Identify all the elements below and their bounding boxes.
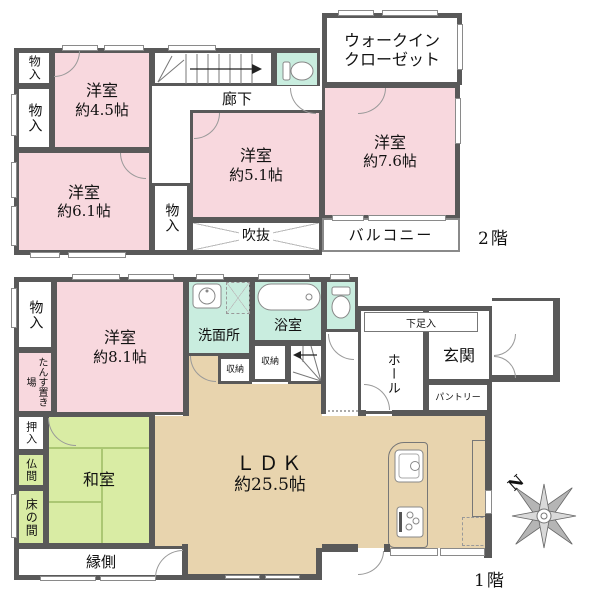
window xyxy=(485,490,492,514)
kitchen-sink-icon xyxy=(394,449,424,483)
room-size: 約8.1帖 xyxy=(93,348,147,366)
room-label: 押入 xyxy=(24,421,37,445)
room-label: バルコニー xyxy=(349,226,434,244)
room-label: 玄関 xyxy=(443,346,475,365)
window xyxy=(455,98,461,144)
room-closet-2f-b: 物入 xyxy=(14,86,52,150)
staircase-1f xyxy=(288,343,324,384)
room-tansu-space: たんす置き場 xyxy=(14,350,54,414)
room-label: 物入 xyxy=(163,203,180,233)
room-size: 約5.1帖 xyxy=(229,166,283,184)
room-label: 洋室 xyxy=(374,133,406,152)
window xyxy=(368,215,446,221)
balcony: バルコニー xyxy=(322,218,460,252)
room-size: 約25.5帖 xyxy=(234,475,306,495)
room-label: 物入 xyxy=(26,103,43,133)
room-label: たんす置き場 xyxy=(23,356,47,408)
room-label: 収納 xyxy=(261,357,279,368)
room-toilet-2f xyxy=(274,48,320,88)
window xyxy=(11,94,17,136)
north-label: N xyxy=(504,471,528,495)
window xyxy=(30,252,60,258)
wall-segment xyxy=(484,548,492,558)
compass-rose: N xyxy=(504,458,584,566)
room-closet-2f-a: 物入 xyxy=(14,48,52,86)
room-label: 下足入 xyxy=(406,315,436,330)
room-walk-in-closet: ウォークイン クローゼット xyxy=(322,13,462,85)
floor-boundary xyxy=(324,410,358,412)
room-label: ＬＤＫ xyxy=(236,451,305,475)
room-butsuma: 仏間 xyxy=(14,452,46,488)
washer-space-icon xyxy=(226,282,250,314)
wall-segment xyxy=(183,354,189,416)
window xyxy=(68,252,126,258)
tatami-line xyxy=(101,447,103,543)
room-shoe-cabinet: 下足入 xyxy=(364,312,478,332)
room-label: 物入 xyxy=(27,300,44,330)
window xyxy=(330,274,350,280)
room-closet-1f: 物入 xyxy=(14,277,54,350)
room-western-8-1: 洋室 約8.1帖 xyxy=(54,277,186,415)
ldk-label-wrap: ＬＤＫ 約25.5帖 xyxy=(200,446,340,500)
window xyxy=(225,575,260,579)
floor-label-1f: 1階 xyxy=(474,566,506,591)
door-arc xyxy=(358,551,384,575)
window xyxy=(104,45,144,51)
room-label: 縁側 xyxy=(86,553,116,571)
window xyxy=(265,575,300,579)
room-tokonoma: 床の間 xyxy=(14,488,46,546)
staircase-2f xyxy=(152,48,274,86)
toilet-icon xyxy=(329,285,353,323)
room-label: パントリー xyxy=(435,393,480,404)
wall-segment xyxy=(358,410,366,416)
stove-icon xyxy=(396,506,424,538)
room-label: 洋室 xyxy=(68,183,100,202)
room-size: 約4.5帖 xyxy=(75,101,129,119)
window xyxy=(168,45,216,51)
room-label: 浴室 xyxy=(274,318,302,335)
window xyxy=(390,548,438,556)
room-label: 廊下 xyxy=(222,90,252,108)
window xyxy=(332,215,364,221)
room-label: 床の間 xyxy=(24,498,38,537)
room-label: 仏間 xyxy=(24,458,37,482)
toilet-icon xyxy=(281,57,317,85)
room-closet-2f-c: 物入 xyxy=(152,183,190,255)
window xyxy=(128,274,174,280)
ldk-area xyxy=(218,384,322,416)
room-size: 約7.6帖 xyxy=(363,152,417,170)
window xyxy=(72,274,120,280)
wall-segment xyxy=(322,544,358,552)
stairs-icon xyxy=(156,54,270,84)
window xyxy=(440,548,485,556)
room-label: 洋室 xyxy=(240,146,272,165)
floor-plan: ウォークイン クローゼット 物入 物入 洋室 約4.5帖 xyxy=(0,0,600,600)
room-closet-shuno-a: 収納 xyxy=(218,356,252,384)
wall-segment xyxy=(392,410,492,416)
room-label: 吹抜 xyxy=(239,228,273,245)
window xyxy=(11,288,17,328)
room-label: 洗面所 xyxy=(198,328,240,345)
wall-segment xyxy=(149,414,155,548)
room-label: ホール xyxy=(384,353,400,395)
room-label: 洋室 xyxy=(104,328,136,347)
room-label: クローゼット xyxy=(344,50,440,69)
room-size: 約6.1帖 xyxy=(57,202,111,220)
room-oshiire-closet: 押入 xyxy=(14,414,46,452)
tatami-line xyxy=(49,501,101,503)
window xyxy=(196,274,224,280)
window xyxy=(11,206,17,246)
room-label: ウォークイン xyxy=(344,31,440,50)
room-toilet-1f xyxy=(324,277,358,332)
window xyxy=(338,10,374,16)
window xyxy=(382,10,438,16)
window xyxy=(457,24,463,70)
atrium-void: 吹抜 xyxy=(190,220,322,255)
wall-segment xyxy=(321,332,326,414)
floor-label-2f: 2階 xyxy=(478,224,510,249)
window xyxy=(100,576,156,581)
window xyxy=(11,494,17,538)
room-label: 収納 xyxy=(226,365,244,376)
washbasin-icon xyxy=(192,283,222,309)
room-western-7-6: 洋室 約7.6帖 xyxy=(322,85,460,218)
wall-segment xyxy=(485,410,492,490)
stairs-icon xyxy=(291,346,321,381)
room-label: 和室 xyxy=(83,470,115,489)
window xyxy=(40,576,96,581)
bathtub-icon xyxy=(257,283,321,311)
window xyxy=(11,162,17,198)
room-closet-shuno-b: 収納 xyxy=(252,343,288,382)
room-label: 洋室 xyxy=(86,81,118,100)
room-label: 物入 xyxy=(27,55,41,81)
tatami-line xyxy=(49,447,149,449)
window xyxy=(258,274,310,280)
